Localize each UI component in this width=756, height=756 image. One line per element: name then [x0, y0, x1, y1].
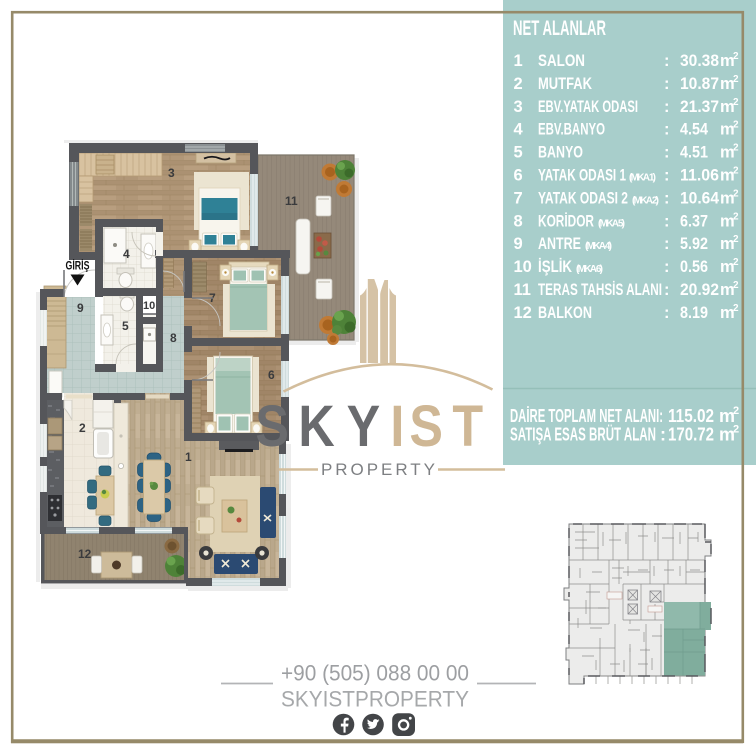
- svg-text:5: 5: [514, 144, 523, 162]
- svg-text:4.54: 4.54: [680, 121, 709, 139]
- svg-text::: :: [664, 189, 670, 207]
- svg-text:12: 12: [78, 547, 92, 561]
- svg-text:(MKA 1): (MKA 1): [629, 173, 656, 184]
- svg-text:SALON: SALON: [538, 52, 585, 70]
- svg-text:3: 3: [168, 166, 175, 180]
- svg-text:K: K: [298, 393, 334, 458]
- svg-text:2: 2: [733, 97, 739, 108]
- svg-text:2: 2: [733, 405, 739, 417]
- svg-text:EBV.BANYO: EBV.BANYO: [538, 121, 605, 139]
- svg-text::: :: [664, 235, 670, 253]
- svg-text:BANYO: BANYO: [538, 144, 583, 162]
- svg-text:SATIŞA ESAS BRÜT ALAN: SATIŞA ESAS BRÜT ALAN: [510, 425, 656, 445]
- svg-text:7: 7: [514, 189, 523, 207]
- svg-text:NET ALANLAR: NET ALANLAR: [513, 17, 606, 40]
- svg-text:2: 2: [733, 211, 739, 222]
- svg-text:(MKA 4): (MKA 4): [585, 241, 612, 252]
- svg-text:11: 11: [285, 194, 298, 208]
- svg-text:0.56: 0.56: [680, 258, 708, 276]
- svg-text:2: 2: [733, 188, 739, 199]
- svg-text::: :: [664, 304, 670, 322]
- svg-text:6.37: 6.37: [680, 212, 708, 230]
- svg-text:30.38: 30.38: [680, 52, 719, 70]
- svg-text:2: 2: [733, 280, 739, 291]
- svg-text:S: S: [409, 393, 443, 458]
- svg-text:GİRİŞ: GİRİŞ: [66, 260, 90, 273]
- svg-text:6: 6: [514, 167, 523, 185]
- svg-text::: :: [664, 258, 670, 276]
- svg-text:2: 2: [733, 166, 739, 177]
- svg-text:11: 11: [514, 281, 531, 299]
- svg-text:9: 9: [77, 301, 84, 315]
- svg-text::: :: [664, 212, 670, 230]
- svg-text:KORİDOR: KORİDOR: [538, 212, 594, 230]
- svg-text:21.37: 21.37: [680, 98, 719, 116]
- svg-text:8: 8: [170, 331, 177, 345]
- svg-text:6: 6: [268, 368, 275, 382]
- svg-text:I: I: [390, 393, 404, 458]
- svg-text:10.87: 10.87: [680, 75, 719, 93]
- svg-text:2: 2: [79, 421, 86, 435]
- svg-text:4: 4: [123, 247, 130, 261]
- svg-text::: :: [664, 281, 670, 299]
- svg-text:(MKA 6): (MKA 6): [576, 264, 603, 275]
- svg-text:2: 2: [514, 75, 523, 93]
- svg-text:PROPERTY: PROPERTY: [321, 460, 435, 479]
- svg-text:3: 3: [514, 98, 523, 116]
- svg-text:115.02: 115.02: [668, 406, 714, 426]
- svg-text:İŞLİK: İŞLİK: [538, 258, 572, 276]
- svg-text::: :: [664, 98, 670, 116]
- svg-text:170.72: 170.72: [668, 425, 714, 445]
- svg-text:20.92: 20.92: [680, 281, 719, 299]
- svg-text:5.92: 5.92: [680, 235, 708, 253]
- svg-text:+90 (505) 088 00 00: +90 (505) 088 00 00: [281, 661, 469, 686]
- svg-text:YATAK ODASI 1: YATAK ODASI 1: [538, 167, 626, 185]
- svg-text:11.06: 11.06: [680, 167, 719, 185]
- svg-text::: :: [664, 144, 670, 162]
- svg-text:EBV.YATAK ODASI: EBV.YATAK ODASI: [538, 98, 638, 116]
- svg-text::: :: [664, 75, 670, 93]
- svg-text:10: 10: [514, 258, 532, 276]
- svg-text:DAİRE TOPLAM NET ALANI:: DAİRE TOPLAM NET ALANI:: [510, 406, 663, 426]
- svg-text:1: 1: [514, 52, 523, 70]
- svg-text:4.51: 4.51: [680, 144, 708, 162]
- svg-text:BALKON: BALKON: [538, 304, 592, 322]
- svg-text:2: 2: [733, 143, 739, 154]
- svg-text:2: 2: [733, 120, 739, 131]
- svg-text::: :: [664, 167, 670, 185]
- svg-text:2: 2: [733, 424, 739, 436]
- svg-text:Y: Y: [347, 393, 381, 458]
- svg-text:TERAS TAHSİS ALANI: TERAS TAHSİS ALANI: [538, 281, 662, 299]
- svg-text:10.64: 10.64: [680, 189, 720, 207]
- svg-text::: :: [664, 121, 670, 139]
- svg-text:8: 8: [514, 212, 523, 230]
- svg-text::: :: [664, 52, 670, 70]
- svg-text:T: T: [452, 393, 483, 458]
- svg-text:YATAK ODASI 2: YATAK ODASI 2: [538, 189, 628, 207]
- svg-text:8.19: 8.19: [680, 304, 708, 322]
- svg-text:2: 2: [733, 51, 739, 62]
- svg-text:ANTRE: ANTRE: [538, 235, 581, 253]
- svg-text:10: 10: [143, 300, 155, 312]
- svg-text:MUTFAK: MUTFAK: [538, 75, 592, 93]
- svg-text:(MKA 2): (MKA 2): [632, 195, 659, 206]
- svg-text:4: 4: [514, 121, 524, 139]
- svg-text:2: 2: [733, 257, 739, 268]
- svg-text:(MKA 5): (MKA 5): [598, 218, 625, 229]
- svg-text:SKYISTPROPERTY: SKYISTPROPERTY: [281, 687, 469, 712]
- svg-text:9: 9: [514, 235, 523, 253]
- svg-text:1: 1: [185, 450, 192, 464]
- svg-text::: :: [660, 425, 666, 445]
- svg-text:2: 2: [733, 74, 739, 85]
- svg-text:S: S: [255, 393, 289, 458]
- svg-text:5: 5: [122, 319, 129, 333]
- svg-text:2: 2: [733, 303, 739, 314]
- svg-text:2: 2: [733, 234, 739, 245]
- svg-text:12: 12: [514, 304, 532, 322]
